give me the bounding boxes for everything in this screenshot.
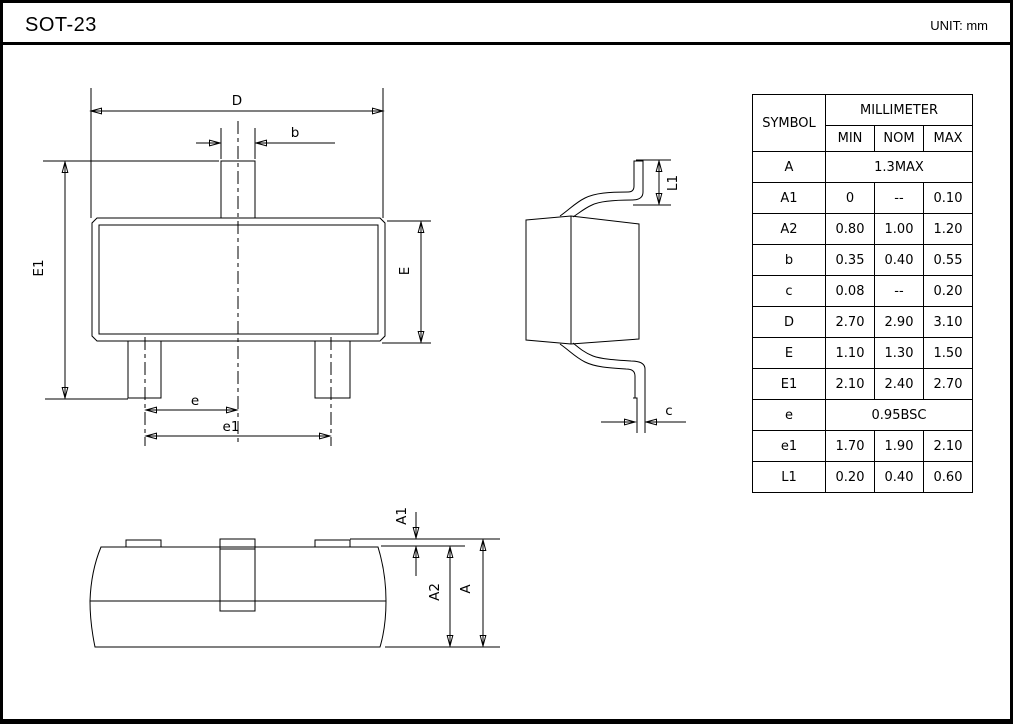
value-cell: 3.10 xyxy=(924,307,973,338)
front-view: A1 A2 A xyxy=(90,507,500,647)
dim-label-E1: E1 xyxy=(31,259,47,276)
symbol-cell: e xyxy=(753,400,826,431)
dimension-row: b 0.35 0.40 0.55 xyxy=(753,245,973,276)
value-cell: 1.10 xyxy=(826,338,875,369)
dim-label-E: E xyxy=(397,267,413,276)
dimension-row: e 0.95BSC xyxy=(753,400,973,431)
value-cell: 2.10 xyxy=(826,369,875,400)
dim-label-A1: A1 xyxy=(394,507,410,525)
symbol-cell: A xyxy=(753,152,826,183)
value-cell: 0.80 xyxy=(826,214,875,245)
header-min: MIN xyxy=(826,126,875,152)
dimension-table: SYMBOL MILLIMETER MIN NOM MAX A 1.3MAX A… xyxy=(752,94,973,493)
side-top-lead xyxy=(560,161,643,217)
table-header-row: SYMBOL MILLIMETER xyxy=(753,95,973,126)
value-cell: 2.70 xyxy=(826,307,875,338)
value-cell: 2.70 xyxy=(924,369,973,400)
value-cell: 0.95BSC xyxy=(826,400,973,431)
side-bottom-lead xyxy=(560,343,645,433)
dimension-row: E 1.10 1.30 1.50 xyxy=(753,338,973,369)
value-cell: 0.08 xyxy=(826,276,875,307)
value-cell: 1.3MAX xyxy=(826,152,973,183)
front-tab-left xyxy=(126,540,161,547)
dimension-row: D 2.70 2.90 3.10 xyxy=(753,307,973,338)
value-cell: -- xyxy=(875,276,924,307)
value-cell: 0.20 xyxy=(826,462,875,493)
value-cell: 2.10 xyxy=(924,431,973,462)
symbol-cell: A1 xyxy=(753,183,826,214)
dim-label-e1: e1 xyxy=(223,419,240,435)
symbol-cell: D xyxy=(753,307,826,338)
dimension-row: A2 0.80 1.00 1.20 xyxy=(753,214,973,245)
front-tab-right xyxy=(315,540,350,547)
dim-label-b: b xyxy=(291,125,300,141)
top-view: D b E1 E e e1 xyxy=(31,88,431,446)
dimension-row: A1 0 -- 0.10 xyxy=(753,183,973,214)
header-symbol: SYMBOL xyxy=(753,95,826,152)
symbol-cell: e1 xyxy=(753,431,826,462)
value-cell: 0 xyxy=(826,183,875,214)
value-cell: 1.20 xyxy=(924,214,973,245)
value-cell: 0.10 xyxy=(924,183,973,214)
dim-label-e: e xyxy=(191,393,199,409)
dim-label-D: D xyxy=(232,93,242,109)
value-cell: 2.90 xyxy=(875,307,924,338)
value-cell: 1.30 xyxy=(875,338,924,369)
side-body xyxy=(526,216,639,344)
value-cell: 1.70 xyxy=(826,431,875,462)
dimension-row: A 1.3MAX xyxy=(753,152,973,183)
value-cell: 0.40 xyxy=(875,462,924,493)
dimension-row: e1 1.70 1.90 2.10 xyxy=(753,431,973,462)
dimension-row: c 0.08 -- 0.20 xyxy=(753,276,973,307)
dim-label-L1: L1 xyxy=(665,175,681,191)
value-cell: -- xyxy=(875,183,924,214)
dim-label-A2: A2 xyxy=(427,583,443,601)
value-cell: 0.35 xyxy=(826,245,875,276)
symbol-cell: E xyxy=(753,338,826,369)
datasheet-page: SOT-23 UNIT: mm D xyxy=(0,0,1013,724)
bottom-lead-right xyxy=(315,341,350,398)
header-nom: NOM xyxy=(875,126,924,152)
value-cell: 1.00 xyxy=(875,214,924,245)
symbol-cell: L1 xyxy=(753,462,826,493)
header-millimeter: MILLIMETER xyxy=(826,95,973,126)
value-cell: 0.60 xyxy=(924,462,973,493)
dim-label-A: A xyxy=(458,584,474,594)
symbol-cell: A2 xyxy=(753,214,826,245)
symbol-cell: c xyxy=(753,276,826,307)
front-center-lead xyxy=(220,539,255,611)
symbol-cell: b xyxy=(753,245,826,276)
dim-label-c: c xyxy=(665,403,672,419)
dimension-row: L1 0.20 0.40 0.60 xyxy=(753,462,973,493)
value-cell: 1.90 xyxy=(875,431,924,462)
dimension-row: E1 2.10 2.40 2.70 xyxy=(753,369,973,400)
symbol-cell: E1 xyxy=(753,369,826,400)
value-cell: 2.40 xyxy=(875,369,924,400)
value-cell: 1.50 xyxy=(924,338,973,369)
side-view: L1 c xyxy=(526,160,686,433)
value-cell: 0.20 xyxy=(924,276,973,307)
front-body xyxy=(90,547,386,647)
header-max: MAX xyxy=(924,126,973,152)
value-cell: 0.55 xyxy=(924,245,973,276)
value-cell: 0.40 xyxy=(875,245,924,276)
